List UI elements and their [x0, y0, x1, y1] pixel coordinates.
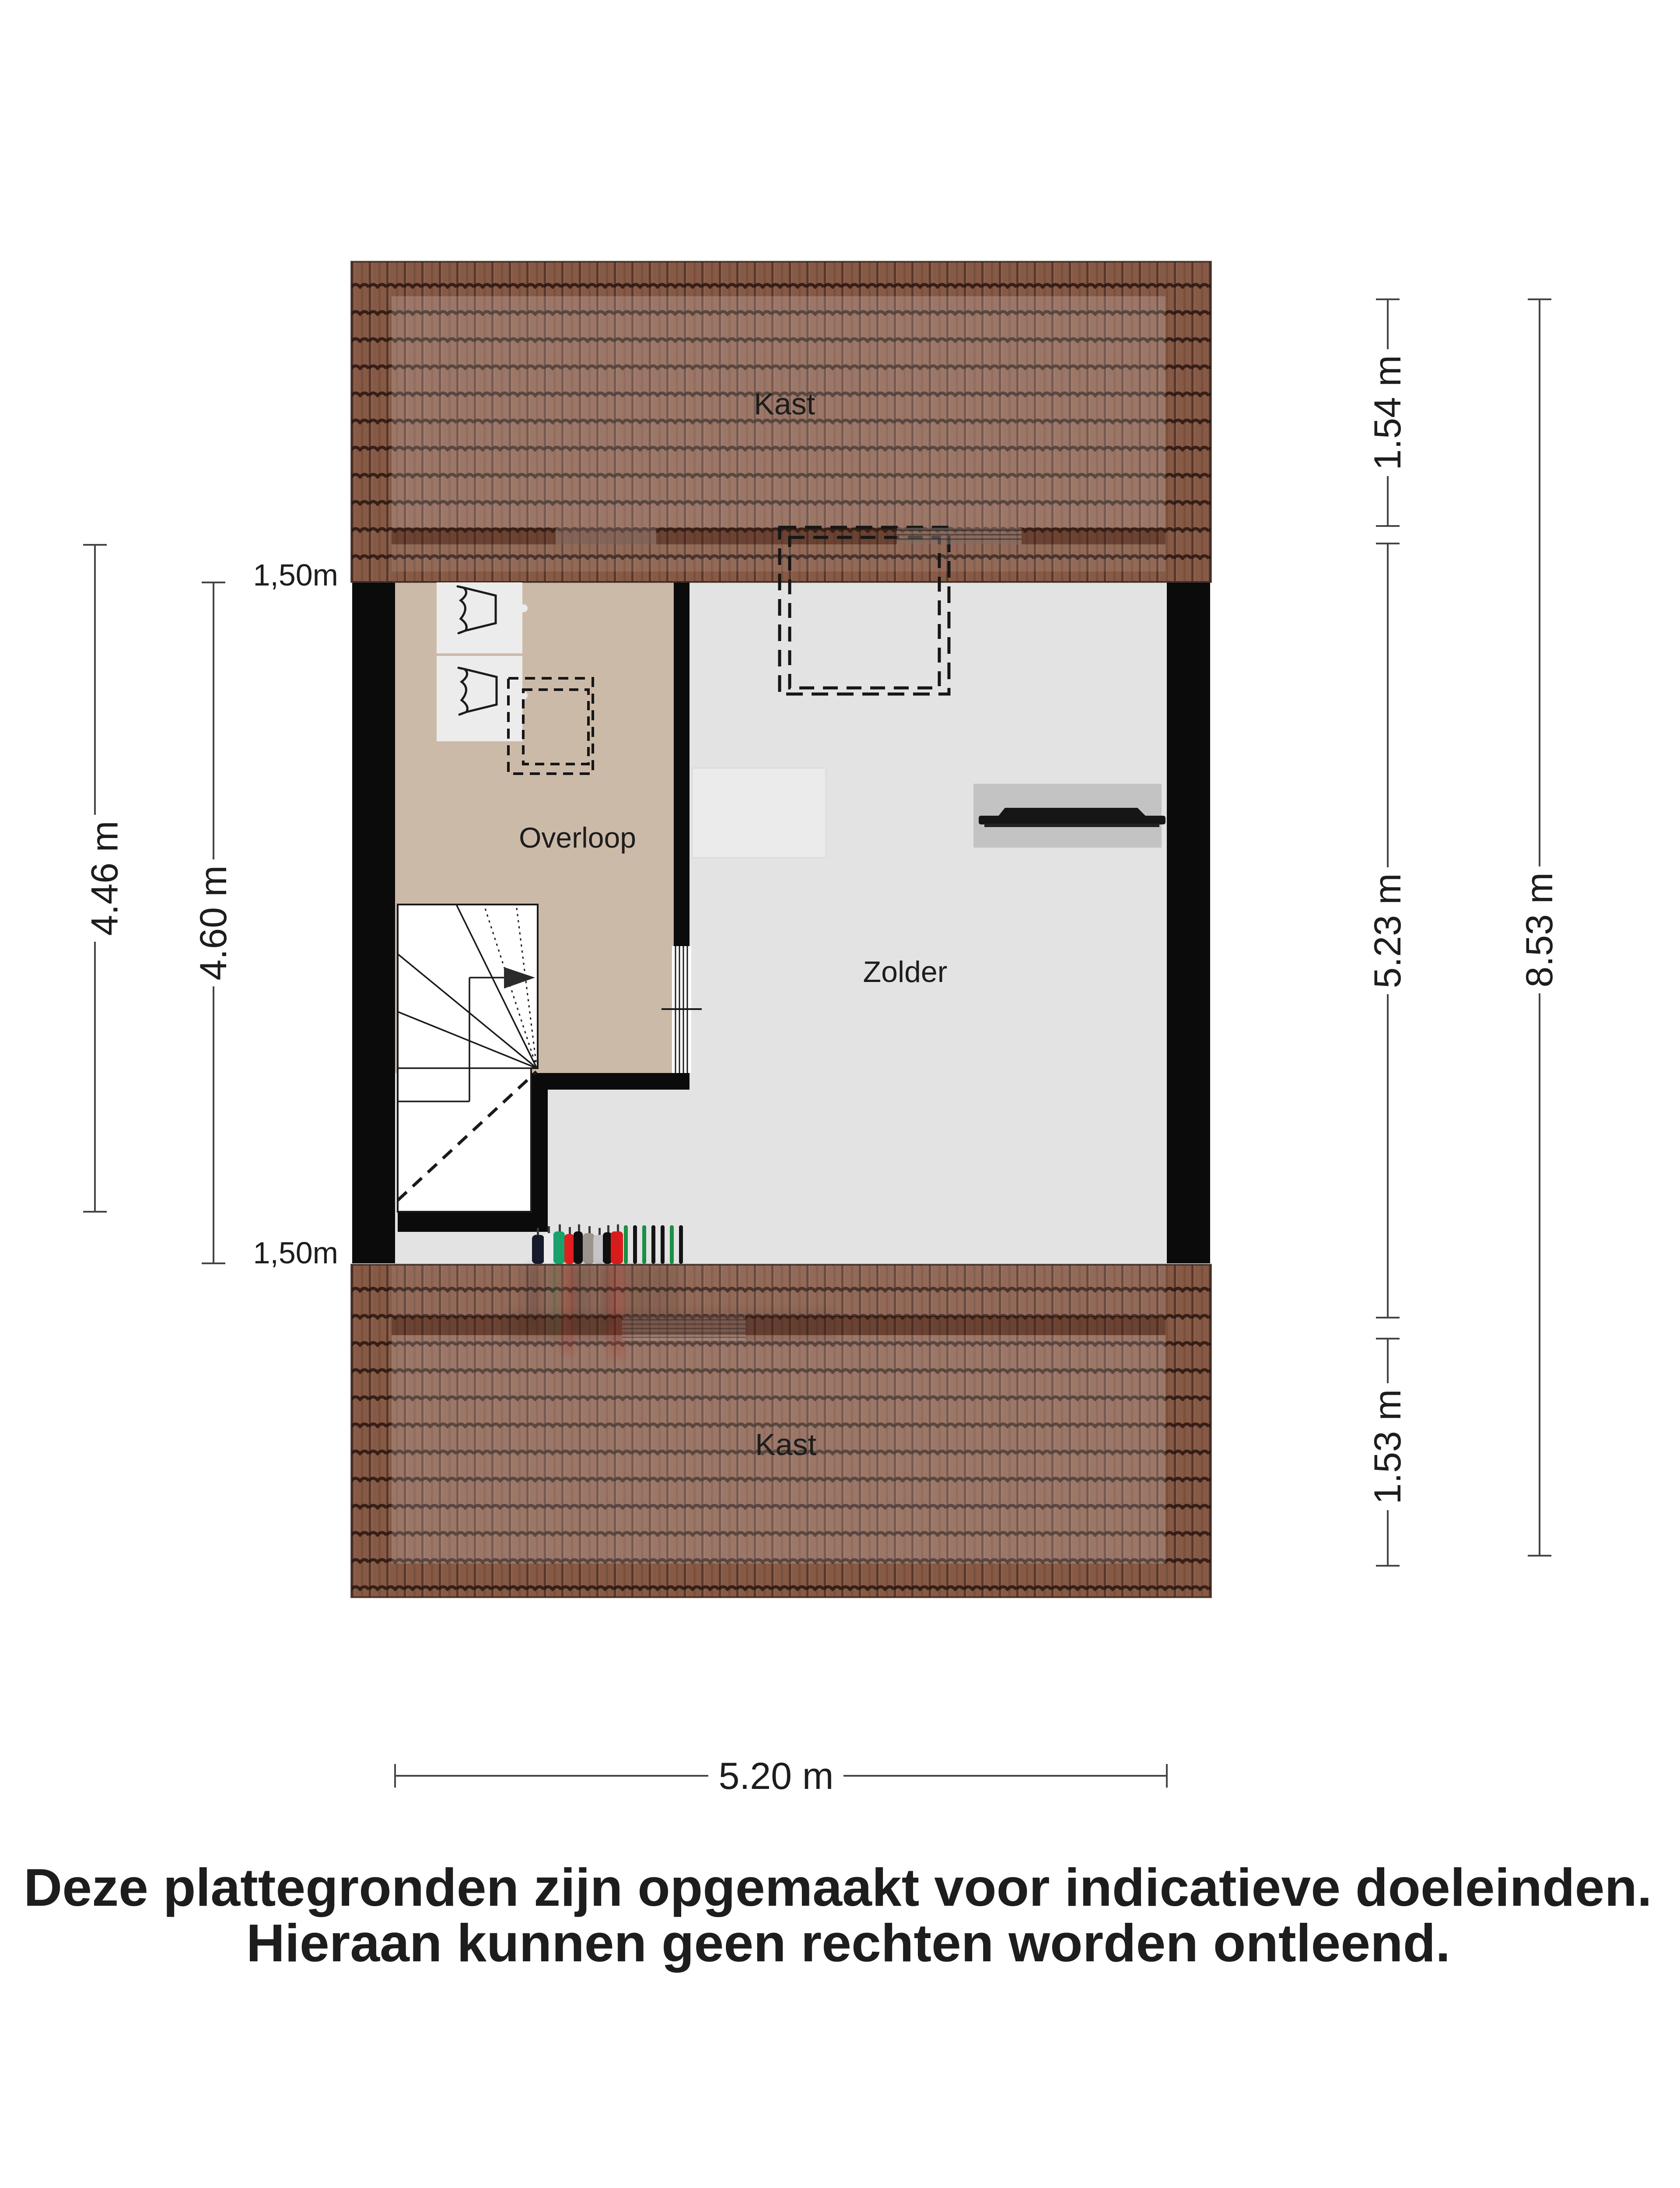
svg-text:8.53 m: 8.53 m	[1519, 873, 1561, 988]
svg-text:5.20 m: 5.20 m	[719, 1755, 834, 1797]
svg-text:1,50m: 1,50m	[253, 1236, 338, 1270]
svg-text:5.23 m: 5.23 m	[1367, 873, 1409, 989]
svg-text:1.53 m: 1.53 m	[1367, 1389, 1409, 1504]
svg-text:4.46 m: 4.46 m	[84, 821, 126, 936]
svg-text:Kast: Kast	[754, 387, 815, 421]
svg-text:Kast: Kast	[755, 1427, 816, 1462]
svg-text:Hieraan kunnen geen rechten wo: Hieraan kunnen geen rechten worden ontle…	[246, 1913, 1450, 1973]
svg-text:Deze plattegronden zijn opgema: Deze plattegronden zijn opgemaakt voor i…	[24, 1858, 1652, 1917]
svg-text:Overloop: Overloop	[519, 821, 636, 854]
svg-text:1,50m: 1,50m	[253, 558, 338, 592]
svg-text:1.54 m: 1.54 m	[1367, 355, 1409, 470]
svg-text:4.60 m: 4.60 m	[192, 866, 234, 981]
svg-text:Zolder: Zolder	[863, 955, 948, 989]
